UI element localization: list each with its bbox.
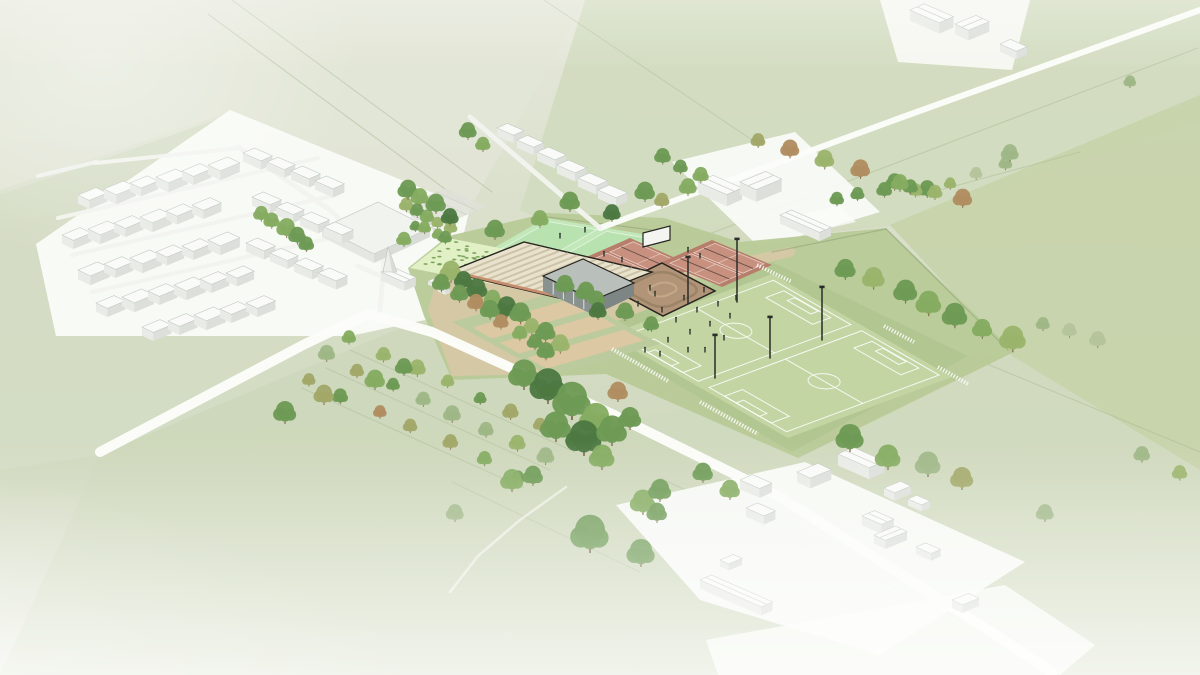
floodlight-head [819, 286, 824, 289]
tree-canopy [973, 172, 979, 178]
tree-canopy [755, 140, 762, 147]
tree-canopy [900, 290, 911, 301]
tree-canopy [834, 198, 841, 205]
tree-canopy [856, 168, 865, 177]
tree-canopy [422, 227, 428, 233]
tree-canopy [560, 283, 569, 292]
tree-canopy [697, 174, 705, 182]
player-head [649, 285, 651, 287]
tree-canopy [677, 166, 684, 173]
tree-canopy [1127, 81, 1133, 87]
tree-canopy [1040, 323, 1047, 330]
player-head [687, 247, 689, 249]
axonometric-site-plan [0, 0, 1200, 675]
tree-canopy [786, 148, 795, 157]
floodlight-head [767, 316, 772, 319]
tree-canopy [479, 143, 486, 150]
player-head [683, 295, 685, 297]
tree-canopy [437, 282, 446, 291]
tree-canopy [659, 155, 667, 163]
tree-canopy [1002, 163, 1008, 169]
tree-canopy [581, 290, 591, 300]
tree-canopy [608, 212, 616, 220]
tree-canopy [442, 237, 448, 243]
floodlight-head [734, 238, 739, 241]
tree-canopy [1094, 338, 1102, 346]
tree-canopy [684, 186, 692, 194]
player-head [699, 253, 701, 255]
tree-canopy [565, 200, 575, 210]
tree-canopy [416, 196, 424, 204]
top-fade [0, 0, 1200, 70]
tree-canopy [403, 204, 410, 211]
tree-canopy [881, 189, 888, 196]
tree-canopy [854, 193, 861, 200]
player-head [559, 233, 561, 235]
tree-canopy [490, 228, 500, 238]
tree-canopy [1006, 152, 1014, 160]
tree-canopy [868, 277, 879, 288]
player-head [735, 295, 737, 297]
site-plan-rendering [0, 0, 1200, 675]
tree-canopy [413, 226, 418, 231]
tree-canopy [958, 197, 967, 206]
tree-canopy [820, 158, 829, 167]
tree-canopy [464, 130, 472, 138]
player-head [584, 227, 586, 229]
tree-canopy [840, 268, 850, 278]
tree-canopy [431, 202, 441, 212]
tree-canopy [446, 216, 454, 224]
tree-canopy [978, 328, 987, 337]
bottom-left-fade [0, 300, 750, 675]
tree-canopy [640, 190, 650, 200]
tree-canopy [896, 182, 904, 190]
tree-canopy [400, 238, 407, 245]
tree-canopy [949, 314, 961, 326]
tree-canopy [536, 218, 544, 226]
tree-canopy [923, 302, 935, 314]
tree-canopy [414, 209, 421, 216]
tree-canopy [658, 199, 665, 206]
tree-canopy [931, 191, 938, 198]
tree-canopy [435, 222, 441, 228]
tree-canopy [1066, 329, 1073, 336]
floodlight-head [685, 256, 690, 259]
player-head [703, 287, 705, 289]
tree-canopy [1007, 337, 1020, 350]
player-head [603, 251, 605, 253]
tree-canopy [455, 292, 464, 301]
player-head [654, 291, 656, 293]
tree-canopy [947, 183, 953, 189]
player-head [621, 257, 623, 259]
